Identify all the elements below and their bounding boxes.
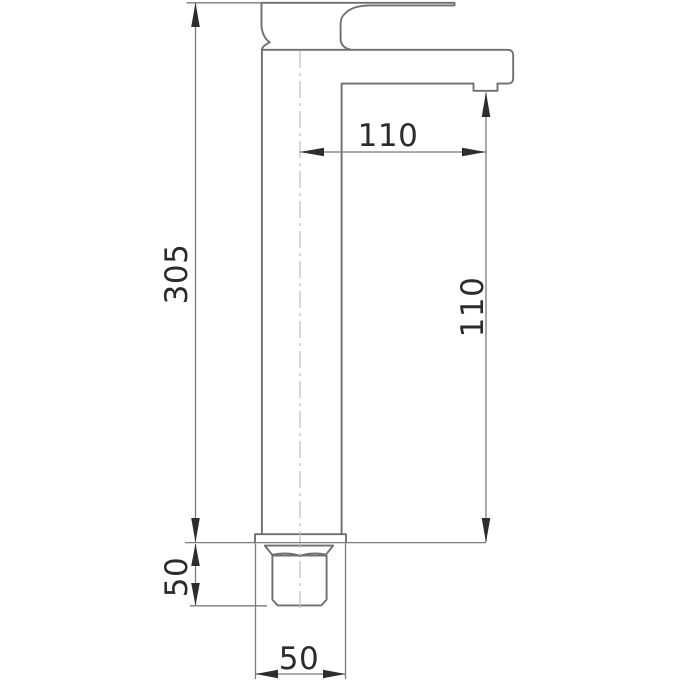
faucet-neck xyxy=(262,3,270,50)
technical-drawing: 305 110 110 50 50 xyxy=(0,0,680,680)
arrowhead-up-icon xyxy=(482,92,491,117)
arrowhead-left-icon xyxy=(300,148,324,156)
dimension-spout-height: 110 xyxy=(455,92,491,543)
hex-nut xyxy=(265,546,333,556)
arrowhead-down-icon xyxy=(191,518,200,543)
arrowhead-right-icon xyxy=(323,670,346,678)
dimension-label-spout-height: 110 xyxy=(455,277,491,338)
dimension-label-spout-reach: 110 xyxy=(358,118,419,154)
arrowhead-up-icon xyxy=(191,3,200,28)
dimension-label-base-width: 50 xyxy=(279,641,319,677)
arrowhead-right-icon xyxy=(462,148,486,156)
dimension-total-height: 305 xyxy=(159,3,262,543)
faucet-handle xyxy=(262,3,455,50)
dimension-shank-length: 50 xyxy=(159,544,267,606)
arrowhead-down-icon xyxy=(482,518,491,543)
dimension-label-total-height: 305 xyxy=(159,244,195,305)
dimension-spout-reach: 110 xyxy=(300,118,486,156)
dimension-label-shank-length: 50 xyxy=(159,557,195,597)
faucet-dimension-svg: 305 110 110 50 50 xyxy=(0,0,680,680)
arrowhead-left-icon xyxy=(256,670,279,678)
aerator xyxy=(474,84,498,91)
